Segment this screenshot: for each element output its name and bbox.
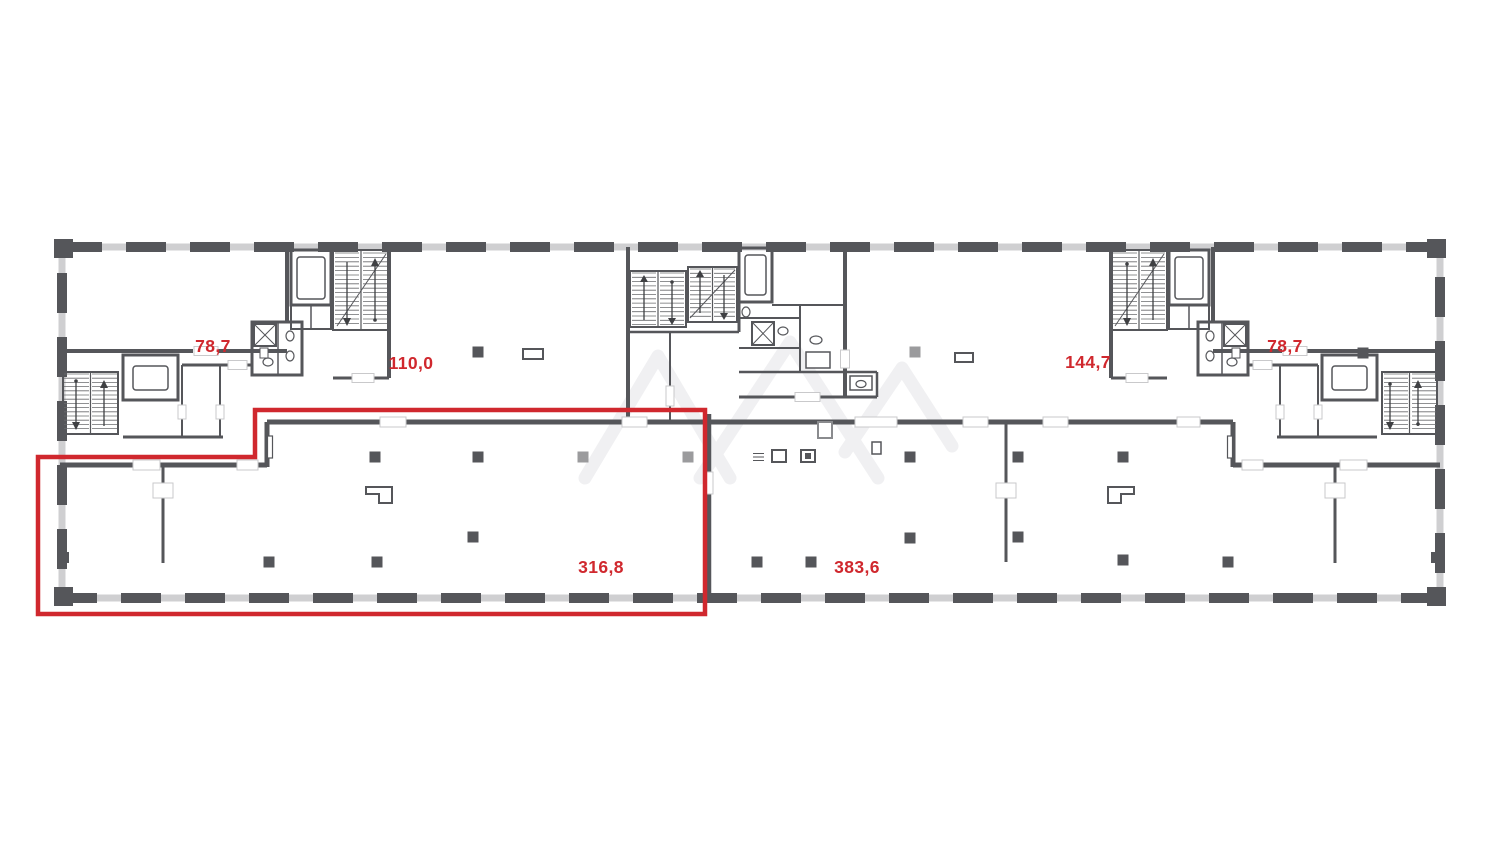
area-label-unit-left-center: 110,0 [389,353,434,373]
elevator-left-edge [123,355,178,400]
partition-hook [1108,487,1134,503]
elevator-right-edge [1322,355,1377,400]
stair-right-center [1111,250,1167,330]
stair-center-a [630,271,686,327]
door-leaf [1228,436,1233,458]
stair-right-edge [1382,372,1437,434]
area-label-unit-left: 78,7 [195,336,231,356]
stair-left-edge [63,372,118,434]
area-label-hall-left: 316,8 [578,557,624,577]
floor-plan-drawing: 78,7 110,0 144,7 78,7 316,8 383,6 [0,0,1500,844]
area-label-unit-right: 78,7 [1267,336,1303,356]
area-label-hall-right: 383,6 [834,557,880,577]
stair-left-center [333,250,389,330]
sink-icon [1206,331,1214,341]
sink-icon [286,351,294,361]
door-leaf [268,436,273,458]
area-label-unit-right-center: 144,7 [1065,352,1111,372]
toilet-icon [263,358,273,366]
elevators [123,248,1377,400]
toilet-icon [810,336,822,344]
sink-icon [1206,351,1214,361]
sink-icon [286,331,294,341]
sink-icon [778,327,788,335]
vanity-icon [806,352,830,368]
stair-center-b [688,267,737,322]
toilet-icon [1227,358,1237,366]
partition-hook [366,487,392,503]
hall-partitions [153,422,1345,563]
elevator-center [739,248,772,302]
interior-walls [60,247,1440,598]
elevator-left-center [291,250,331,329]
elevator-right-center [1169,250,1209,329]
floor-plan-canvas: 78,7 110,0 144,7 78,7 316,8 383,6 [0,0,1500,844]
sink-icon [742,307,750,317]
